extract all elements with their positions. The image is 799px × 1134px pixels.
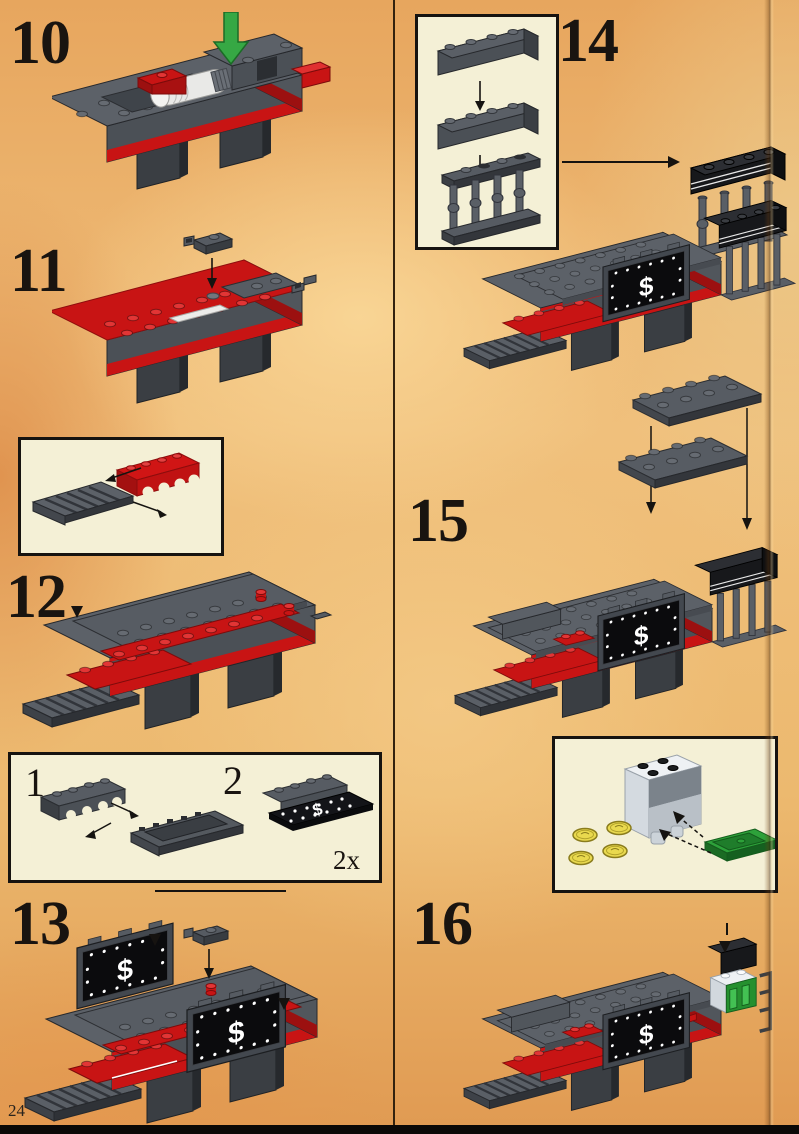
- down-arrowhead-icon: [71, 606, 83, 618]
- step-13-number: 13: [10, 893, 70, 955]
- step-16-number: 16: [412, 893, 472, 955]
- step-15-illustration: $: [440, 526, 799, 741]
- fence-stack-illustration: [418, 17, 556, 247]
- dollar-decal: $: [117, 953, 133, 989]
- red-arch-plate: [117, 453, 200, 498]
- down-arrowhead-icon: [719, 941, 731, 953]
- plate-2x4: [633, 375, 761, 426]
- step-12-illustration: [15, 560, 395, 732]
- quantity-label: 2x: [333, 847, 360, 874]
- dollar-decal: $: [639, 1018, 654, 1051]
- fence-stack-callout-box: [415, 14, 559, 250]
- fence-piece: [442, 153, 540, 245]
- parts-callout-box: $ 1 2 2x: [8, 752, 382, 883]
- step-13-illustration: $ $: [15, 918, 400, 1130]
- down-arrowhead-icon: [278, 998, 290, 1010]
- brick-1x4: [438, 103, 538, 149]
- container-callout-box: [552, 736, 778, 893]
- container-callout-illustration: [555, 739, 775, 890]
- clip-plates: [292, 275, 316, 293]
- column-divider: [393, 0, 395, 1134]
- connector-line: [155, 890, 286, 892]
- grille-parts-callout-box: [18, 437, 224, 556]
- red-round-plate: [206, 984, 216, 996]
- ribbed-grille-piece: [33, 482, 133, 525]
- brick-1x4: [438, 29, 538, 75]
- step-15-number: 15: [408, 490, 468, 552]
- bottom-black-bar: [0, 1125, 799, 1134]
- floating-clip-plate: [184, 233, 232, 254]
- down-arrowhead-icon: [475, 101, 485, 111]
- step-11-illustration: [52, 224, 352, 422]
- down-arrowhead-icon: [646, 502, 656, 514]
- coin-icon: [573, 829, 597, 842]
- dollar-decal: $: [228, 1015, 245, 1052]
- gray-tray-tile: [131, 811, 243, 856]
- step-12-number: 12: [6, 566, 66, 628]
- right-arrowhead-icon: [668, 156, 680, 168]
- step-16-illustration: $: [455, 923, 799, 1134]
- part-2-label: 2: [223, 761, 243, 801]
- gray-arch-plate: [41, 779, 125, 820]
- page-number: 24: [8, 1101, 25, 1121]
- part-1-label: 1: [25, 763, 45, 803]
- step-11-number: 11: [10, 240, 67, 302]
- page-crease: [764, 0, 774, 1134]
- down-arrowhead-icon: [149, 934, 161, 946]
- parts-callout-illustration: $: [11, 755, 379, 880]
- black-brick: [709, 938, 757, 974]
- step-10-number: 10: [10, 12, 70, 74]
- dollar-decal: $: [639, 270, 654, 303]
- floating-clip-plate: [184, 926, 228, 945]
- coin-icon: [603, 845, 627, 858]
- plate-2x4: [619, 437, 747, 488]
- step-10-illustration: [52, 12, 352, 207]
- instruction-page: 10 11: [0, 0, 799, 1134]
- coin-icon: [607, 822, 631, 835]
- coin-icon: [569, 852, 593, 865]
- dollar-decal: $: [634, 619, 649, 652]
- grille-parts-illustration: [21, 440, 221, 553]
- connector-line: [562, 161, 670, 163]
- step-14-number: 14: [558, 10, 618, 72]
